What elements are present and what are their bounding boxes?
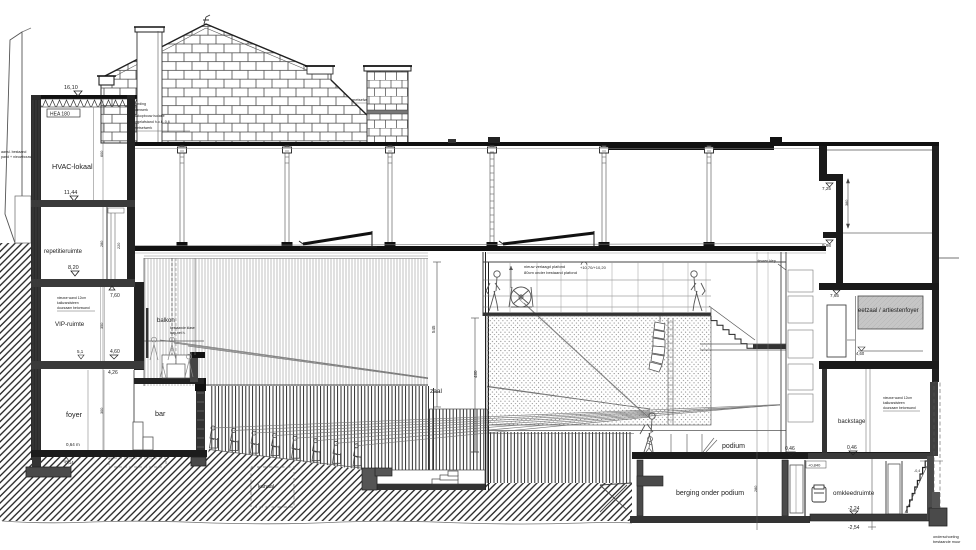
svg-text:onderschoeiing: onderschoeiing (933, 535, 959, 539)
svg-text:kanaal: kanaal (258, 484, 274, 490)
svg-text:podium: podium (722, 443, 745, 450)
svg-text:nieuwe wand 12cm: nieuwe wand 12cm (57, 296, 86, 300)
svg-text:0,46: 0,46 (847, 445, 857, 451)
svg-text:kalkzandsteen: kalkzandsteen (883, 401, 905, 405)
svg-text:-0,4: -0,4 (914, 469, 920, 473)
svg-text:backstage: backstage (838, 419, 866, 425)
svg-text:0,64 m: 0,64 m (66, 442, 80, 447)
svg-text:280: 280 (100, 241, 104, 247)
svg-text:nieuw verlaagd plafond: nieuw verlaagd plafond (524, 264, 565, 269)
svg-text:5,1: 5,1 (77, 349, 84, 354)
svg-text:545: 545 (431, 325, 436, 333)
svg-text:4,60: 4,60 (856, 351, 865, 356)
svg-text:380: 380 (845, 200, 849, 206)
svg-text:aansl. bestaand: aansl. bestaand (1, 150, 26, 154)
svg-text:7,60: 7,60 (110, 293, 120, 299)
svg-text:300: 300 (100, 408, 104, 414)
svg-text:pand + nieuwbouw: pand + nieuwbouw (1, 155, 31, 159)
svg-text:+10,70/+10,20: +10,70/+10,20 (580, 265, 607, 270)
svg-text:220: 220 (117, 243, 121, 249)
svg-text:0,46: 0,46 (785, 446, 795, 452)
svg-text:klimwerk: klimwerk (134, 108, 148, 112)
svg-text:480: 480 (473, 370, 478, 378)
svg-text:zaal: zaal (430, 388, 442, 395)
svg-text:repetitieruimte: repetitieruimte (44, 249, 83, 255)
svg-text:-2,54: -2,54 (848, 525, 860, 531)
svg-text:16,10: 16,10 (64, 85, 78, 91)
svg-text:bestaande muur: bestaande muur (933, 540, 961, 544)
svg-text:omkleedruimte: omkleedruimte (833, 490, 875, 497)
svg-text:80cm onder bestaand plafond: 80cm onder bestaand plafond (524, 270, 577, 275)
svg-text:duurzaam betonwand: duurzaam betonwand (57, 306, 90, 310)
svg-text:foyer: foyer (66, 410, 83, 419)
svg-text:duurzaam betonwand: duurzaam betonwand (883, 406, 916, 410)
svg-text:4,60: 4,60 (110, 349, 120, 355)
svg-text:HEA 180: HEA 180 (50, 112, 70, 118)
svg-text:4,26: 4,26 (108, 370, 118, 376)
svg-text:balkon: balkon (157, 318, 175, 324)
svg-text:280: 280 (754, 486, 758, 492)
svg-text:nieuwe wand 12cm: nieuwe wand 12cm (883, 396, 912, 400)
svg-text:bestaande klase: bestaande klase (170, 326, 195, 330)
svg-text:trap-net h.: trap-net h. (170, 331, 186, 335)
svg-text:+0,840: +0,840 (808, 463, 821, 468)
svg-text:HVAC-lokaal: HVAC-lokaal (52, 162, 93, 171)
svg-text:regelafstand h.o.h. 0,6: regelafstand h.o.h. 0,6 (134, 120, 170, 124)
svg-text:7,65: 7,65 (830, 293, 839, 298)
svg-text:8,20: 8,20 (68, 265, 79, 271)
svg-text:600: 600 (100, 151, 104, 157)
svg-text:dakopbouw isolatie: dakopbouw isolatie (134, 114, 165, 118)
svg-text:11,44: 11,44 (64, 190, 77, 196)
svg-text:bar: bar (155, 409, 166, 418)
svg-text:eetzaal / artiestenfoyer: eetzaal / artiestenfoyer (858, 308, 919, 314)
svg-text:metselwerk: metselwerk (134, 126, 152, 130)
svg-text:berging onder podium: berging onder podium (676, 490, 744, 497)
svg-text:deuren klep: deuren klep (757, 259, 776, 263)
svg-text:kalkzandsteen: kalkzandsteen (57, 301, 79, 305)
svg-text:VIP-ruimte: VIP-ruimte (55, 321, 85, 328)
